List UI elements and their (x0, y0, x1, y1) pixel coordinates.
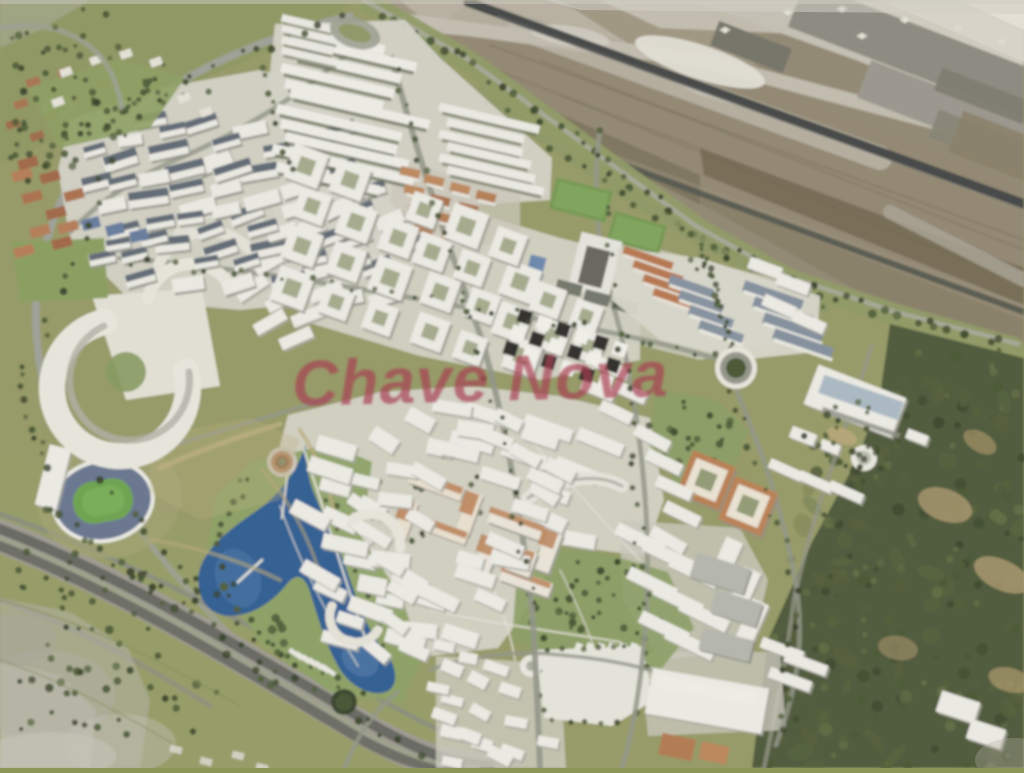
svg-text:Chave Nova: Chave Nova (291, 338, 669, 420)
